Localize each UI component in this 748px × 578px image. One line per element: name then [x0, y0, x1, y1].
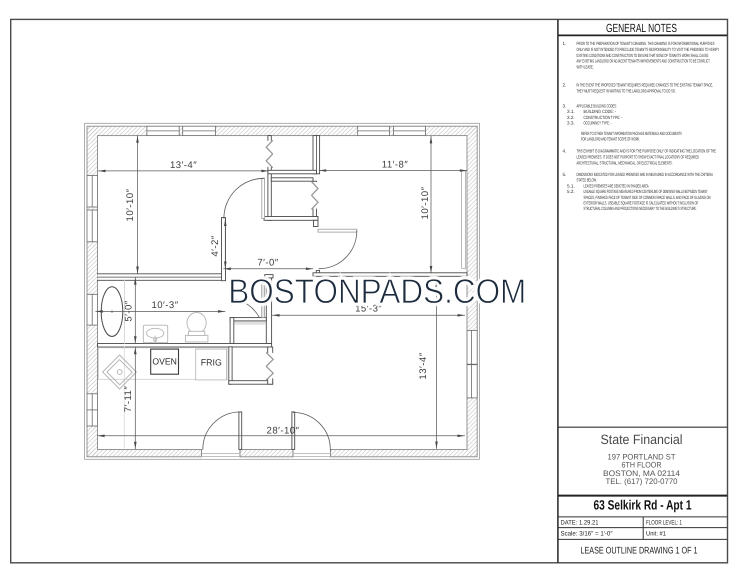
- svg-text:State Financial: State Financial: [601, 432, 683, 447]
- svg-text:BUILDING CODE: -: BUILDING CODE: -: [584, 109, 617, 114]
- svg-text:BOSTONPADS.COM: BOSTONPADS.COM: [228, 273, 526, 311]
- svg-text:WITH LEASE.: WITH LEASE.: [577, 65, 594, 70]
- svg-text:ANY EXISTING LANDLORD OR ADJAC: ANY EXISTING LANDLORD OR ADJACENT TENANT…: [577, 59, 710, 64]
- svg-text:4.: 4.: [563, 149, 567, 154]
- svg-text:TEL. (617) 720-0770: TEL. (617) 720-0770: [606, 477, 679, 486]
- svg-text:5.2.: 5.2.: [567, 189, 575, 194]
- svg-text:LEASED PREMISES. IT DOES NOT: LEASED PREMISES. IT DOES NOT PURPORT TO …: [577, 154, 700, 159]
- svg-text:3.2.: 3.2.: [567, 115, 575, 120]
- svg-text:FOR LANDLORD AND TENANT SCOPE: FOR LANDLORD AND TENANT SCOPE OF WORK.: [581, 137, 640, 142]
- svg-text:10′-10″: 10′-10″: [420, 186, 431, 219]
- svg-text:GENERAL NOTES: GENERAL NOTES: [606, 21, 677, 35]
- svg-text:28′-10″: 28′-10″: [267, 425, 300, 436]
- svg-text:STRUCTURAL COLUMNS AND PROJECT: STRUCTURAL COLUMNS AND PROJECTIONS NECES…: [584, 206, 697, 211]
- svg-text:5.1.: 5.1.: [567, 183, 575, 188]
- svg-text:OCCUPANCY TYPE: -: OCCUPANCY TYPE: -: [584, 121, 612, 126]
- svg-text:THIS EXHIBIT IS DIAGRAMMATIC A: THIS EXHIBIT IS DIAGRAMMATIC AND IS FOR …: [577, 149, 717, 154]
- svg-text:3.3.: 3.3.: [567, 121, 575, 126]
- svg-text:7′-11″: 7′-11″: [123, 386, 134, 413]
- svg-text:STATED BELOW:: STATED BELOW:: [577, 178, 597, 183]
- svg-text:IN THE EVENT THE PROPOSED TENA: IN THE EVENT THE PROPOSED TENANT REQUIRE…: [577, 83, 713, 88]
- svg-text:5.: 5.: [563, 172, 567, 177]
- svg-text:CONSTRUCTION TYPE: -: CONSTRUCTION TYPE: -: [584, 115, 623, 120]
- svg-text:DATE: 1.29.21: DATE: 1.29.21: [561, 520, 599, 527]
- svg-text:ARCHITECTURAL, STRUCTURAL, MEC: ARCHITECTURAL, STRUCTURAL, MECHANICAL, O…: [577, 160, 673, 165]
- svg-text:4′-2″: 4′-2″: [210, 235, 221, 256]
- svg-text:3.: 3.: [563, 104, 567, 109]
- svg-text:THEY MUST REQUEST IN WRITING: THEY MUST REQUEST IN WRITING TO THE LAND…: [577, 88, 676, 93]
- svg-text:PRIOR TO THE PREPARATION OF TE: PRIOR TO THE PREPARATION OF TENANT’S DRA…: [577, 41, 715, 46]
- svg-text:REFER TO OTHER TENANT INFORMAT: REFER TO OTHER TENANT INFORMATION PACKAG…: [581, 131, 682, 136]
- svg-text:13′-4″: 13′-4″: [418, 352, 429, 379]
- svg-text:ONLY AND IS NOT INTENDED TO PR: ONLY AND IS NOT INTENDED TO PRECLUDE TEN…: [577, 47, 720, 52]
- svg-text:10′-10″: 10′-10″: [125, 188, 136, 221]
- svg-text:APPLICABLE BUILDING CODES:: APPLICABLE BUILDING CODES:: [577, 104, 617, 109]
- svg-text:Scale: 3/16″ = 1′-0″: Scale: 3/16″ = 1′-0″: [561, 531, 614, 538]
- svg-text:EXISTING CONDITIONS AND CONSTR: EXISTING CONDITIONS AND CONSTRUCTION TO …: [577, 53, 709, 58]
- svg-text:1.: 1.: [563, 41, 567, 46]
- svg-text:7′-0″: 7′-0″: [257, 257, 278, 268]
- svg-text:10′-3″: 10′-3″: [151, 300, 178, 311]
- svg-text:USEABLE SQUARE FOOTAGE MEASURE: USEABLE SQUARE FOOTAGE MEASURED FROM CEN…: [584, 189, 708, 194]
- svg-text:FRIG: FRIG: [201, 358, 222, 368]
- svg-text:LEASE OUTLINE DRAWING 1 OF 1: LEASE OUTLINE DRAWING 1 OF 1: [581, 546, 698, 557]
- svg-text:SPACES, FINISHED FACE OF TENAN: SPACES, FINISHED FACE OF TENANT SIDE OF …: [584, 195, 711, 200]
- svg-text:OVEN: OVEN: [152, 357, 177, 367]
- svg-text:2.: 2.: [563, 83, 567, 88]
- svg-text:11′-8″: 11′-8″: [382, 160, 409, 171]
- svg-text:13′-4″: 13′-4″: [170, 160, 197, 171]
- svg-text:LEASED PREMISES ARE DENOTED IN: LEASED PREMISES ARE DENOTED IN SHADED AR…: [584, 183, 650, 188]
- svg-text:5′-0″: 5′-0″: [124, 300, 135, 321]
- svg-text:Unit: #1: Unit: #1: [646, 531, 666, 538]
- svg-text:DIMENSIONS INDICATED FOR LEASE: DIMENSIONS INDICATED FOR LEASED PREMISES…: [577, 172, 714, 177]
- svg-text:EXTERIOR WALLS. USEABLE SQUAR: EXTERIOR WALLS. USEABLE SQUARE FOOTAGE I…: [584, 201, 699, 206]
- svg-text:3.1.: 3.1.: [567, 109, 575, 114]
- svg-text:63 Selkirk Rd - Apt 1: 63 Selkirk Rd - Apt 1: [594, 498, 692, 513]
- svg-text:FLOOR LEVEL: 1: FLOOR LEVEL: 1: [646, 520, 682, 527]
